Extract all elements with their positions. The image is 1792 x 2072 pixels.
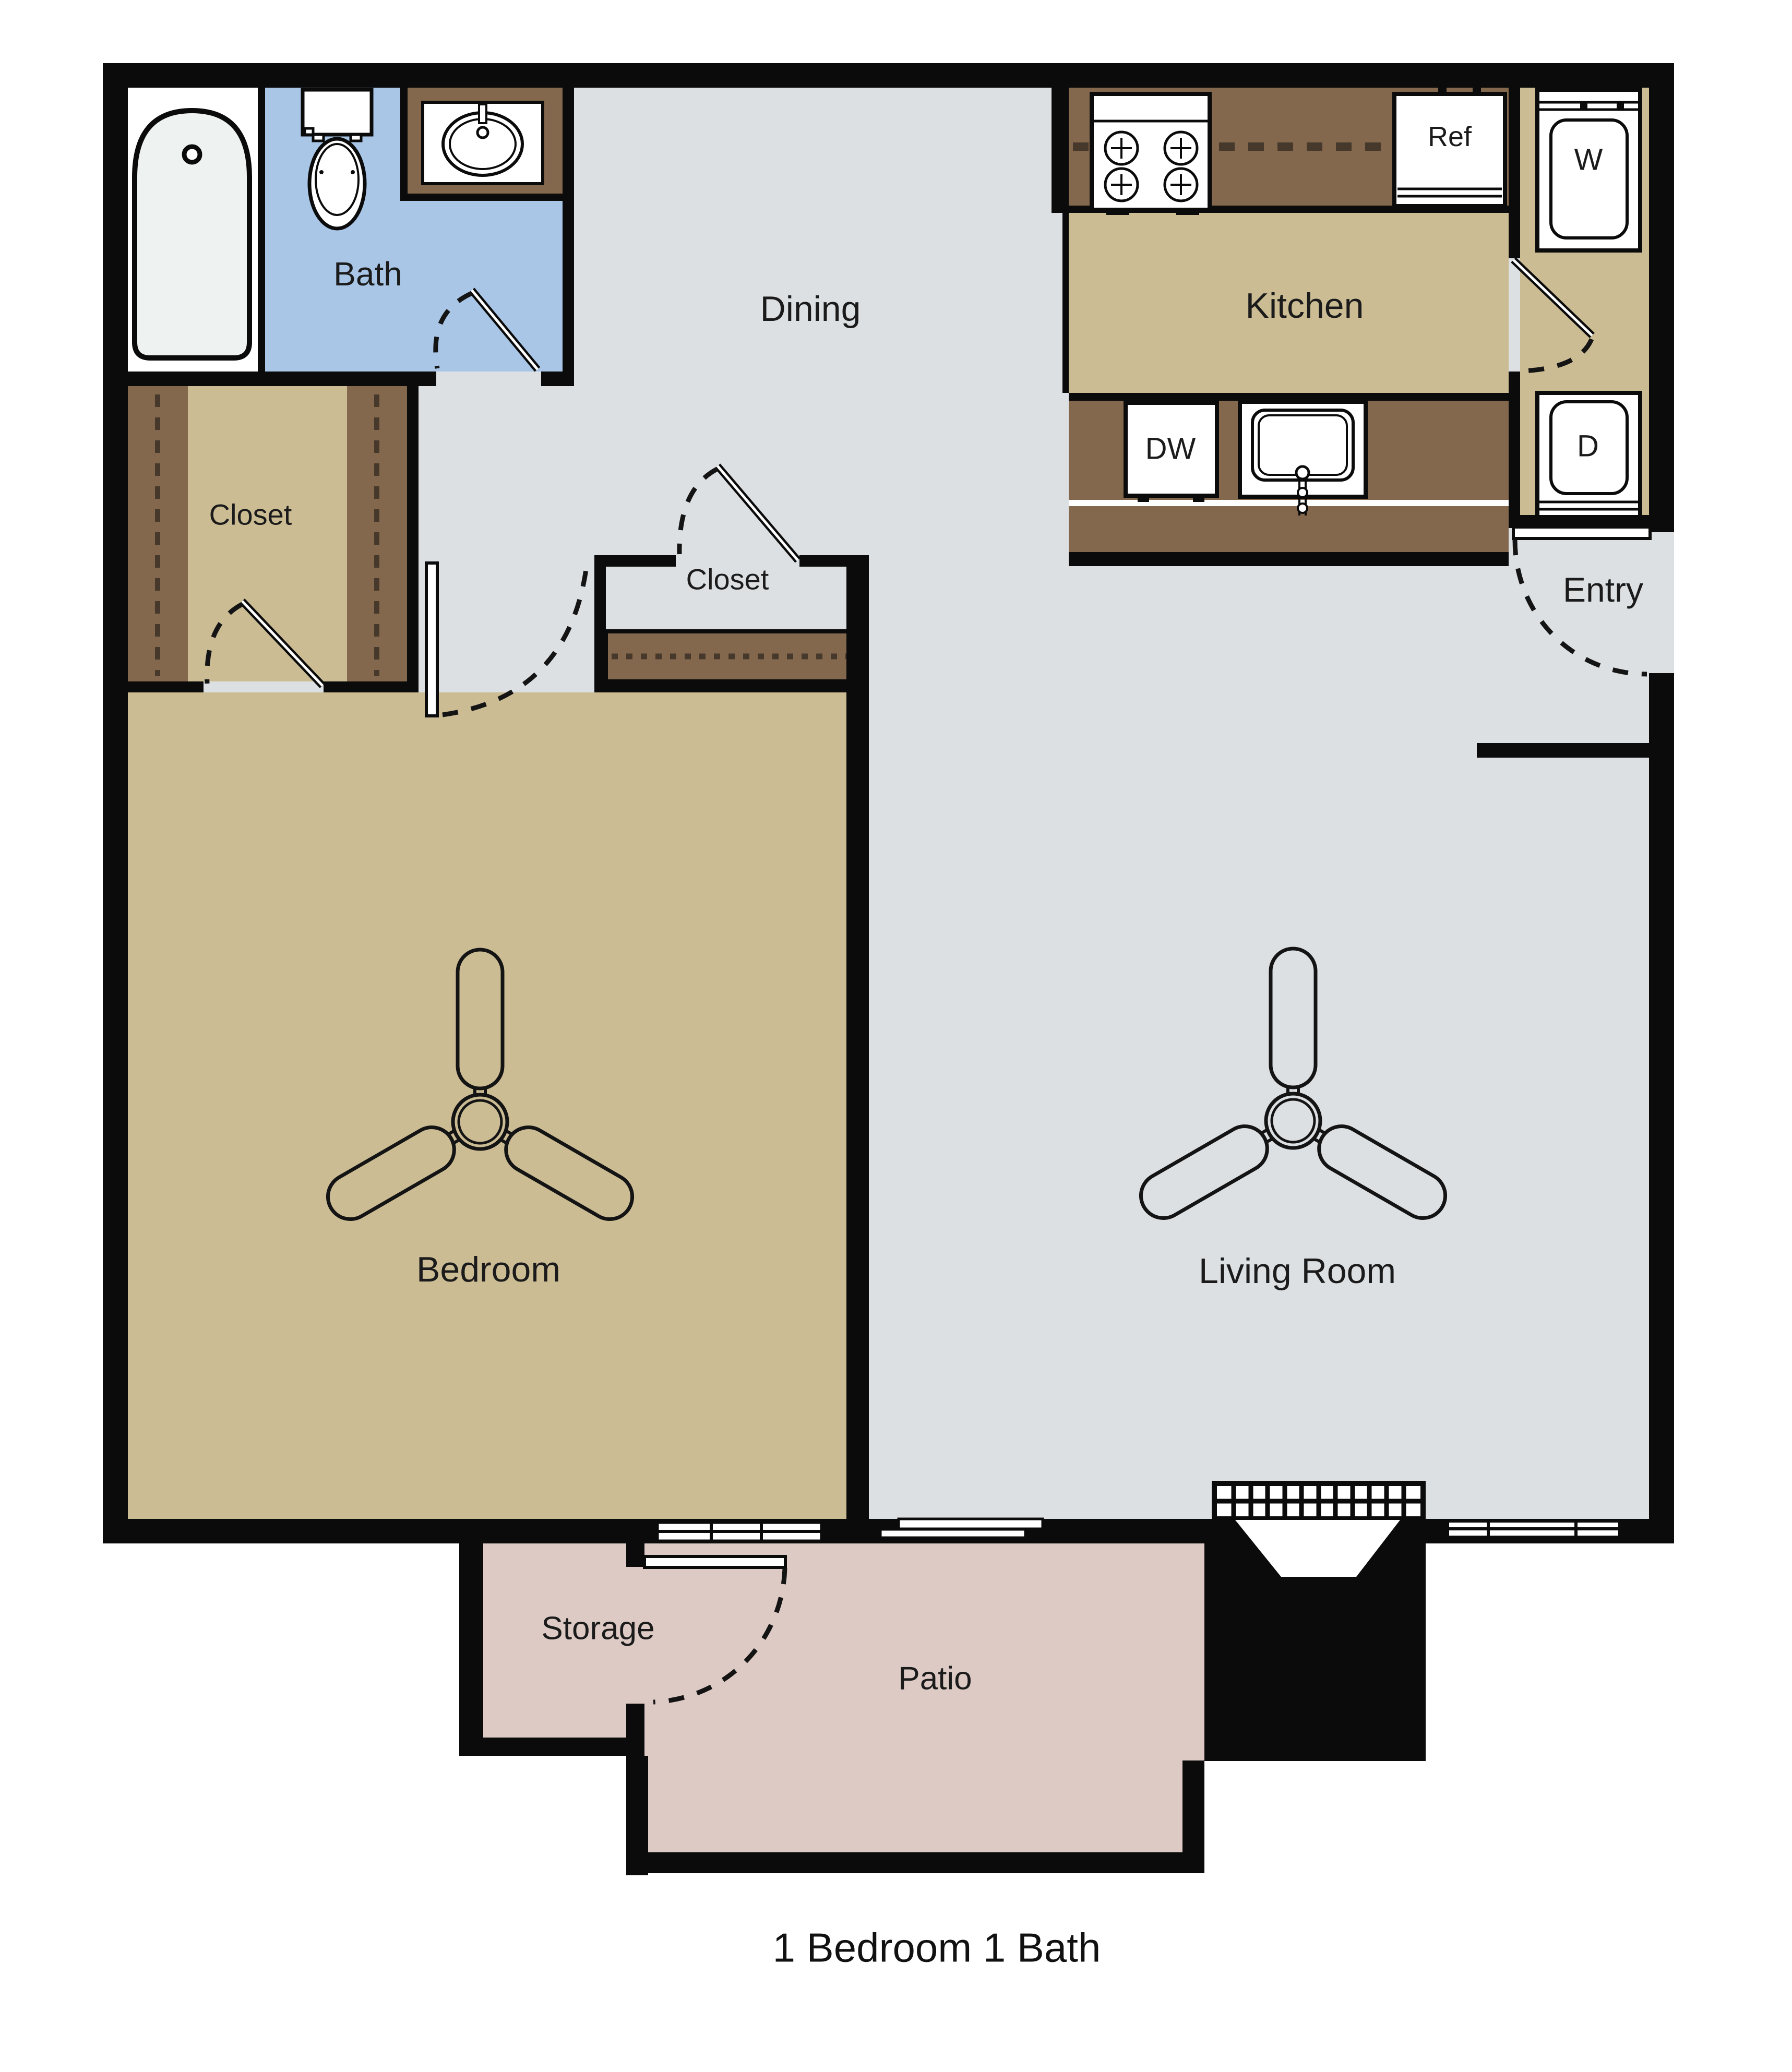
refrigerator-label: Ref: [1428, 121, 1472, 153]
floors: [103, 63, 1674, 1855]
storage-label: Storage: [541, 1610, 654, 1647]
counter-edge: [1069, 552, 1509, 566]
dishwasher-label: DW: [1145, 432, 1196, 466]
storage-south-wall: [459, 1738, 644, 1756]
kitchen-west-wall: [1052, 88, 1069, 213]
storage-east-wall: [626, 1543, 644, 1567]
counter-gap: [1069, 500, 1509, 506]
closet-hall-label: Closet: [686, 562, 769, 596]
patio-south-wall: [626, 1852, 1204, 1873]
dryer-label: D: [1577, 429, 1599, 464]
kitchen-label: Kitchen: [1246, 285, 1364, 326]
vanity-edge: [400, 194, 563, 201]
wall-left: [103, 63, 128, 1543]
floor-plan: Bath Dining Kitchen Entry Closet Closet …: [0, 0, 1792, 2072]
floor-plan-drawing: [0, 0, 1792, 2072]
washer-label: W: [1574, 142, 1603, 177]
counter-edge: [1069, 393, 1509, 401]
kitchen-east-wall: [1509, 88, 1520, 258]
closet-east-wall: [407, 386, 419, 692]
kitchen-east-wall: [1509, 372, 1520, 528]
bath-east-wall: [563, 88, 574, 386]
bedroom-floor: [128, 692, 846, 1519]
wall-top: [103, 63, 1674, 88]
fireplace-icon: [1204, 1481, 1426, 1761]
dining-label: Dining: [760, 289, 861, 329]
bath-sink-icon: [423, 102, 543, 184]
tub-partition: [258, 88, 265, 372]
bath-south-wall: [103, 372, 436, 386]
bedroom-door-leaf: [426, 563, 437, 716]
sliding-door-icon: [880, 1519, 1043, 1538]
hall-closet-south-wall: [594, 681, 869, 692]
storage-door-leaf: [644, 1556, 785, 1567]
living-room-window-icon: [1448, 1521, 1620, 1537]
patio-east-wall: [1182, 1760, 1204, 1873]
stove-foot: [1106, 210, 1129, 215]
patio-label: Patio: [898, 1660, 972, 1697]
patio-floor: [629, 1543, 1204, 1855]
closet-south-wall: [103, 681, 204, 692]
wall-right-lower: [1649, 673, 1674, 1543]
hall-closet-west-wall: [594, 555, 606, 692]
bedroom-divider-wall: [846, 555, 869, 1519]
bath-label: Bath: [333, 255, 402, 293]
entry-stub-wall: [1477, 743, 1674, 758]
closet-south-wall: [324, 681, 419, 692]
kitchen-bar: [1069, 506, 1509, 552]
stove-foot: [1176, 210, 1199, 215]
closet-left-label: Closet: [209, 498, 292, 532]
toilet-icon: [303, 90, 372, 229]
hall-closet-north-wall: [594, 555, 676, 567]
wall-right-upper: [1649, 63, 1674, 532]
storage-east-wall: [626, 1704, 644, 1738]
bedroom-label: Bedroom: [416, 1249, 560, 1290]
stove-icon: [1092, 94, 1210, 215]
vanity-edge: [400, 88, 408, 201]
kitchen-west-edge: [1062, 213, 1069, 393]
plan-title: 1 Bedroom 1 Bath: [773, 1924, 1101, 1972]
bedroom-window-icon: [657, 1522, 822, 1541]
kitchen-sink-icon: [1240, 402, 1366, 516]
entry-label: Entry: [1563, 570, 1643, 609]
storage-west-wall: [459, 1543, 483, 1756]
bathtub-icon: [135, 111, 249, 358]
entry-door-leaf: [1513, 527, 1650, 538]
living-room-label: Living Room: [1199, 1251, 1396, 1291]
